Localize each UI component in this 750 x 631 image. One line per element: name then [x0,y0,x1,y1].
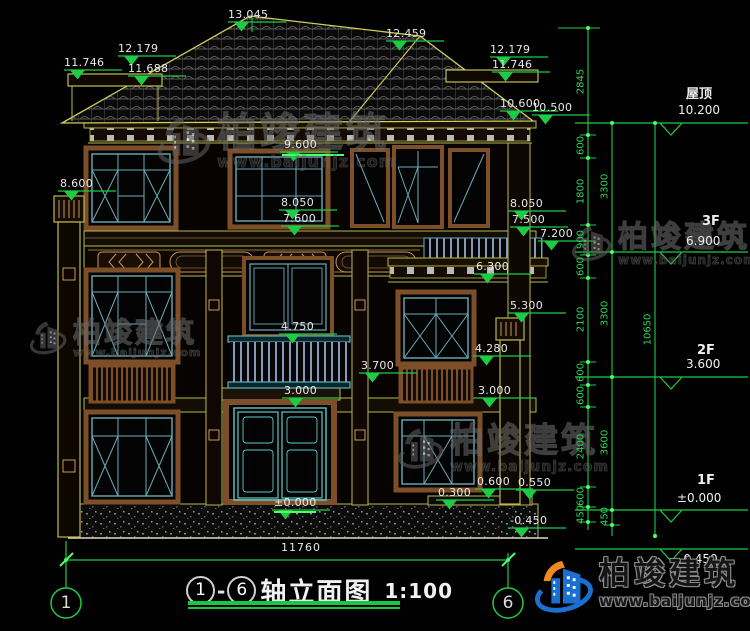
window-1f-left [86,412,178,502]
eave-band [84,121,536,143]
dimension-chains [558,28,655,536]
title-underline-thick [188,601,400,605]
building-emblem-icon [532,555,594,617]
roof [62,16,538,123]
brand-emblem-icon [532,555,594,621]
window-2f-right [398,292,474,402]
chimney-left [54,196,84,537]
floor-level-lines [575,123,748,561]
balcony [228,258,350,388]
window-2f-left [86,270,178,402]
footer-logo: 柏竣建筑 www.baijunjz.com [532,555,750,621]
brand-name: 柏竣建筑 [599,559,750,591]
title-dash: - [217,579,225,603]
window-3f-center [230,151,328,227]
brand-url: www.baijunjz.com [599,594,750,609]
axis-bubble-6: 6 [496,593,520,613]
cad-canvas: 柏竣建筑 www.baijunjz.com 柏竣建筑 www.baijunjz.… [0,0,750,631]
axis-bubble-1: 1 [54,593,78,613]
window-3f-left [86,148,176,228]
plinth [68,504,548,538]
title-underline-thin [188,607,400,609]
windows-3f-right [352,147,488,227]
overall-width-dim: 11760 [281,541,321,554]
elevation-drawing [0,0,750,631]
drawing-scale: 1:100 [384,579,453,603]
entrance-door [226,402,334,502]
